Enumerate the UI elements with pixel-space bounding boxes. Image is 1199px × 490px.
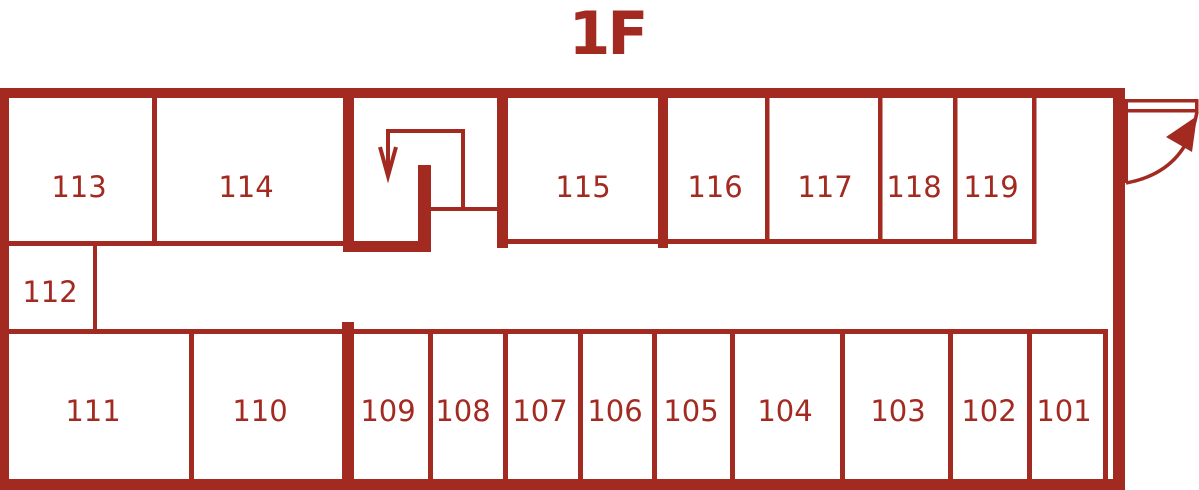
wall-right bbox=[1113, 88, 1125, 490]
divider-116-117 bbox=[765, 98, 770, 244]
divider-111-110 bbox=[189, 334, 194, 481]
divider-105-104 bbox=[730, 334, 735, 481]
divider-109-108 bbox=[428, 334, 433, 481]
room-label-112: 112 bbox=[22, 275, 77, 309]
room-label-105: 105 bbox=[663, 394, 718, 428]
divider-107-106 bbox=[578, 334, 583, 481]
wall-112-right bbox=[93, 246, 97, 331]
door-header-inner-line bbox=[1124, 109, 1199, 113]
room-label-114: 114 bbox=[218, 170, 273, 204]
room-label-111: 111 bbox=[65, 394, 120, 428]
stair-edge-bottom bbox=[431, 207, 497, 211]
floor-plan-svg: 1F bbox=[0, 0, 1199, 490]
room-label-116: 116 bbox=[687, 170, 742, 204]
room-label-108: 108 bbox=[435, 394, 490, 428]
stair-edge-top bbox=[386, 129, 465, 133]
divider-113-114 bbox=[152, 98, 157, 246]
wall-114-stairs bbox=[343, 88, 354, 252]
stairwell bbox=[343, 129, 497, 252]
door-leaf bbox=[1124, 99, 1128, 183]
corridor-wall-113-114 bbox=[9, 241, 343, 246]
divider-106-105 bbox=[652, 334, 657, 481]
divider-102-101 bbox=[1027, 334, 1032, 481]
wall-stairs-115 bbox=[497, 88, 508, 248]
wall-top bbox=[0, 88, 1123, 98]
stairwell-flight-wall bbox=[418, 165, 431, 252]
door-header-end bbox=[1195, 99, 1199, 113]
divider-118-119 bbox=[953, 98, 958, 244]
wall-115-116 bbox=[658, 88, 668, 248]
room-label-115: 115 bbox=[555, 170, 610, 204]
top-room-labels: 113 114 115 116 117 118 119 bbox=[51, 170, 1018, 204]
middle-band-walls bbox=[93, 246, 97, 331]
divider-108-107 bbox=[503, 334, 508, 481]
entrance-door-icon bbox=[1124, 99, 1199, 183]
divider-104-103 bbox=[840, 334, 845, 481]
room-label-102: 102 bbox=[961, 394, 1016, 428]
floor-title: 1F bbox=[569, 0, 646, 69]
door-header-outer-line bbox=[1124, 99, 1199, 103]
room-label-119: 119 bbox=[963, 170, 1018, 204]
room-label-106: 106 bbox=[587, 394, 642, 428]
room-label-109: 109 bbox=[360, 394, 415, 428]
divider-119-hall bbox=[1032, 98, 1037, 244]
room-label-118: 118 bbox=[886, 170, 941, 204]
room-label-101: 101 bbox=[1036, 394, 1091, 428]
room-label-113: 113 bbox=[51, 170, 106, 204]
room-label-110: 110 bbox=[232, 394, 287, 428]
middle-room-labels: 112 bbox=[22, 275, 77, 309]
room-label-117: 117 bbox=[797, 170, 852, 204]
room-label-104: 104 bbox=[757, 394, 812, 428]
top-band-walls bbox=[9, 88, 1037, 252]
stairwell-bottom-wall bbox=[343, 241, 431, 252]
room-label-103: 103 bbox=[870, 394, 925, 428]
stair-edge-right bbox=[461, 129, 465, 211]
divider-117-118 bbox=[878, 98, 883, 244]
wall-bottom bbox=[0, 479, 1125, 490]
stairs-down-arrow-icon bbox=[380, 130, 396, 176]
wall-left bbox=[0, 88, 9, 490]
wall-110-109 bbox=[342, 322, 354, 481]
corridor-wall-bottom-rooms bbox=[9, 329, 1108, 334]
room-label-107: 107 bbox=[512, 394, 567, 428]
divider-101-wall bbox=[1103, 334, 1108, 481]
floor-plan: 1F bbox=[0, 0, 1199, 490]
door-swing-arrowhead bbox=[1166, 116, 1197, 152]
divider-103-102 bbox=[948, 334, 953, 481]
corridor-wall-115-119 bbox=[508, 239, 1036, 244]
